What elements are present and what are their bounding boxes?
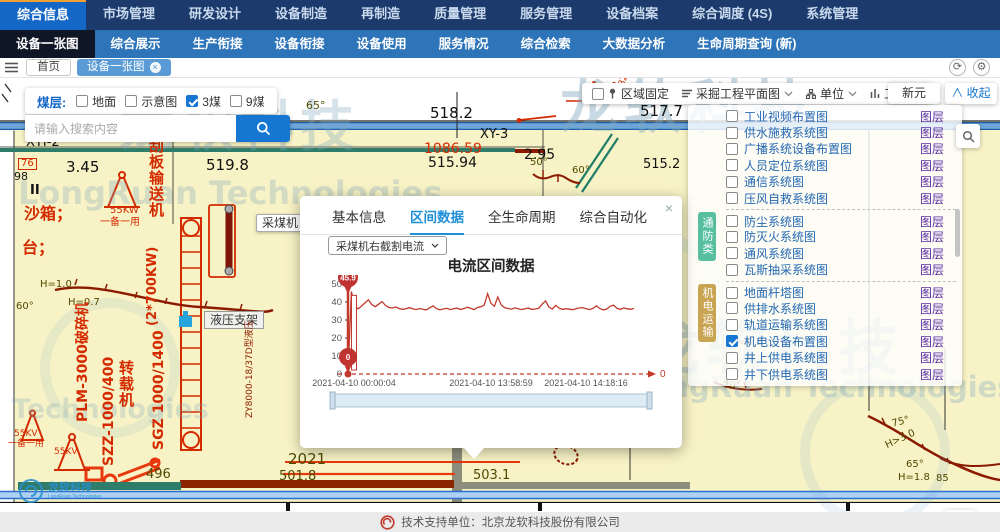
top-nav-item[interactable]: 研发设计 [172,0,258,30]
layer-row[interactable]: 地面杆塔图 图层 [726,281,956,300]
layer-label[interactable]: 井上供电系统图 [744,349,828,366]
top-nav-item[interactable]: 设备制造 [258,0,344,30]
map-label: 沙箱； [24,206,72,222]
layer-label[interactable]: 防灭火系统图 [744,228,816,245]
refresh-icon[interactable]: ⟳ [949,59,966,76]
layer-link[interactable]: 图层 [920,108,944,125]
layer-link[interactable]: 图层 [920,124,944,141]
layer-label[interactable]: 地面杆塔图 [744,284,804,301]
map-label: (2*700KW) [146,247,159,326]
popup-tabs: 基本信息区间数据全生命周期综合自动化 [300,196,682,235]
checkbox-icon[interactable] [726,352,738,364]
checkbox-icon[interactable] [726,287,738,299]
checkbox-icon[interactable] [592,88,604,100]
popup-tab[interactable]: 全生命周期 [488,206,556,234]
svg-text:2021-04-10 13:58:59: 2021-04-10 13:58:59 [449,378,533,388]
map-label: 液压支架 [204,311,264,329]
svg-text:2021-04-10 14:18:16: 2021-04-10 14:18:16 [544,378,628,388]
checkbox-icon[interactable] [726,127,738,139]
map-label: 65° [906,460,924,470]
layer-label[interactable]: 工业视频布置图 [744,108,828,125]
layer-link[interactable]: 图层 [920,300,944,317]
map-label: 1086.59 [424,142,482,156]
layer-row[interactable]: 轨道运输系统图 图层 [726,317,956,333]
layer-link[interactable]: 图层 [920,228,944,245]
app-window: 综合信息市场管理研发设计设备制造再制造质量管理服务管理设备档案综合调度 (4S)… [0,0,1000,532]
layer-row[interactable]: 瓦斯抽采系统图 图层 [726,262,956,278]
map-label: 518.2 [430,106,473,121]
map-label: 一备一用 [100,218,140,228]
map-label: 60° [16,302,34,312]
map-toolbar: 区域固定 采掘工程平面图 单位 工具 [582,83,931,104]
layer-label[interactable]: 防尘系统图 [744,213,804,230]
top-nav-item[interactable]: 质量管理 [417,0,503,30]
checkbox-icon[interactable] [726,368,738,380]
seam-option-label: 示意图 [141,93,177,110]
sub-nav-item[interactable]: 综合展示 [95,30,177,58]
map-label: 刮板输送机 [148,138,163,218]
layer-link[interactable]: 图层 [920,173,944,190]
longruan-map-logo: 龙软科技 LongRuan Technologies [18,478,102,504]
sub-nav-item[interactable]: 生命周期查询 (新) [681,30,812,58]
seam-checkbox[interactable]: 示意图 [125,93,177,110]
breadcrumb: 首页 设备一张图 × ⟳ ⚙ [0,58,1000,78]
layer-link[interactable]: 图层 [920,245,944,262]
map-label: 515.94 [428,156,477,170]
checkbox-icon[interactable] [726,247,738,259]
map-label: 519.8 [206,158,249,173]
layer-label[interactable]: 通信系统图 [744,173,804,190]
menu-toggle-icon[interactable] [5,62,18,73]
search-button[interactable] [236,115,290,142]
seam-option-label: 9煤 [246,93,265,110]
sub-nav-item[interactable]: 设备衔接 [259,30,341,58]
unit-label: 单位 [820,85,844,102]
layer-link[interactable]: 图层 [920,140,944,157]
layer-label[interactable]: 通风系统图 [744,245,804,262]
plan-select[interactable]: 采掘工程平面图 [682,85,793,102]
org-tree-icon [806,89,816,99]
map-label: 转载机 [118,360,133,408]
chart-title: 电流区间数据 [300,255,682,276]
map-label: 3.45 [66,160,99,175]
panel-scrollbar[interactable] [955,209,960,257]
layer-row[interactable]: 机电设备布置图 图层 [726,333,956,349]
device-detail-popup: × 基本信息区间数据全生命周期综合自动化 采煤机右截割电流 电流区间数据 010… [300,196,682,448]
seam-option-label: 3煤 [202,93,221,110]
sub-nav-item[interactable]: 设备使用 [341,30,423,58]
layer-row[interactable]: 通信系统图 图层 [726,174,956,190]
map-label: 98 [14,171,28,182]
checkbox-icon[interactable] [726,335,738,347]
seam-option-label: 地面 [92,93,116,110]
sub-nav-item[interactable]: 综合检索 [505,30,587,58]
layer-row[interactable]: 井下供电系统图 图层 [726,366,956,382]
checkbox-icon[interactable] [726,215,738,227]
top-nav-item[interactable]: 设备档案 [589,0,675,30]
metric-dropdown-value: 采煤机右截割电流 [336,238,424,254]
layer-link[interactable]: 图层 [920,190,944,207]
area-fix-label: 区域固定 [621,85,669,102]
checkbox-icon[interactable] [726,143,738,155]
map-label: 85 [936,474,949,484]
popup-tab[interactable]: 区间数据 [410,206,464,235]
current-interval-chart[interactable]: 0102030405002021-04-10 00:00:042021-04-1… [312,275,668,416]
seam-checkbox[interactable]: 9煤 [230,93,265,110]
layer-row[interactable]: 井上供电系统图 图层 [726,349,956,365]
layer-row[interactable]: 防尘系统图 图层 [726,209,956,228]
map-label: SGZ 1000/1400 [152,330,166,450]
map-label: 65° [306,100,326,111]
checkbox-icon[interactable] [726,319,738,331]
checkbox-icon[interactable] [726,110,738,122]
svg-text:2021-04-10 00:00:04: 2021-04-10 00:00:04 [312,378,396,388]
tools-icon [870,89,880,98]
layer-label[interactable]: 井下供电系统图 [744,366,828,383]
layer-label[interactable]: 供水施救系统图 [744,124,828,141]
map-label: 55KV [14,430,38,439]
footer: 技术支持单位：北京龙软科技股份有限公司 [0,512,1000,532]
sub-nav-item[interactable]: 大数据分析 [587,30,682,58]
svg-text:20: 20 [331,333,342,344]
mine-select-button[interactable]: 新元 [888,83,940,104]
map-label: 517.7 [640,104,683,119]
chevron-up-icon: ∧ [951,86,963,100]
layer-label[interactable]: 机电设备布置图 [744,333,828,350]
plan-label: 采掘工程平面图 [696,85,780,102]
search-icon [962,130,975,143]
map-search [25,115,290,142]
sub-nav-item[interactable]: 设备一张图 [0,30,95,58]
layer-label[interactable]: 轨道运输系统图 [744,316,828,333]
top-nav-item[interactable]: 综合调度 (4S) [675,0,789,30]
layer-panel: 工业视频布置图 图层 供水施救系统图 图层 广播系统设备布置图 图层 人员定位系… [688,105,962,386]
map-label: 60° [572,166,590,176]
checkbox-icon[interactable] [726,176,738,188]
seam-checkbox[interactable]: 3煤 [186,93,221,110]
brand-en: LongRuan Technologies [48,494,102,500]
layer-link[interactable]: 图层 [920,316,944,333]
top-nav-item[interactable]: 服务管理 [503,0,589,30]
top-nav-item[interactable]: 市场管理 [86,0,172,30]
layer-row[interactable]: 广播系统设备布置图 图层 [726,141,956,157]
footer-text: 技术支持单位：北京龙软科技股份有限公司 [401,514,620,530]
checkbox-icon[interactable] [726,264,738,276]
collapse-panel-button[interactable]: ∧ 收起 [945,83,997,104]
top-nav-item[interactable]: 系统管理 [789,0,875,30]
layer-row[interactable]: 通风系统图 图层 [726,245,956,261]
checkbox-icon[interactable] [726,159,738,171]
map-label: 55KV [54,448,78,457]
checkbox-icon[interactable] [186,95,198,107]
layer-row[interactable]: 供排水系统图 图层 [726,300,956,316]
tab-current[interactable]: 设备一张图 × [77,59,171,76]
layer-row[interactable]: 供水施救系统图 图层 [726,124,956,140]
top-nav-item[interactable]: 综合信息 [0,0,86,30]
svg-text:45.9: 45.9 [340,275,356,282]
close-tab-icon[interactable]: × [150,62,161,73]
sub-nav: 设备一张图综合展示生产衔接设备衔接设备使用服务情况综合检索大数据分析生命周期查询… [0,30,1000,58]
chevron-down-icon [431,243,439,248]
layer-link[interactable]: 图层 [920,284,944,301]
settings-gear-icon[interactable]: ⚙ [973,59,990,76]
svg-text:40: 40 [331,297,342,308]
map-label: 采煤机 [256,214,304,232]
checkbox-icon[interactable] [125,95,137,107]
layer-link[interactable]: 图层 [920,261,944,278]
map-label: 496 [146,468,171,481]
layer-link[interactable]: 图层 [920,213,944,230]
map-label: XY-3 [480,128,508,141]
map-label: SZZ-1000/400 [102,357,116,466]
metric-dropdown[interactable]: 采煤机右截割电流 [328,236,447,255]
svg-text:0: 0 [346,353,351,362]
longruan-logo-icon [380,515,395,530]
map-label: 501.8 [279,470,316,483]
panel-search-button[interactable] [956,124,980,148]
longruan-swirl-icon [18,478,44,504]
chevron-down-icon [784,91,793,97]
brand-cn: 龙软科技 [48,482,102,494]
checkbox-icon[interactable] [726,192,738,204]
map-label: 76 [18,158,37,170]
layer-link[interactable]: 图层 [920,333,944,350]
map-label: 55KW [110,206,139,216]
pin-icon [608,88,617,99]
map-label: 515.2 [643,158,680,171]
layer-label[interactable]: 瓦斯抽采系统图 [744,261,828,278]
top-nav-item[interactable]: 再制造 [344,0,417,30]
checkbox-icon[interactable] [230,95,242,107]
checkbox-icon[interactable] [76,95,88,107]
seam-toolbar: 煤层: 地面 示意图 3煤 9煤 [25,88,277,114]
layer-label[interactable]: 广播系统设备布置图 [744,140,852,157]
layer-link[interactable]: 图层 [920,366,944,383]
map-label: 50° [530,158,548,168]
area-fix-toggle[interactable]: 区域固定 [592,85,669,102]
checkbox-icon[interactable] [726,302,738,314]
map-label: 2021 [288,452,326,467]
map-label: 台； [22,240,54,256]
map-label: PLM-3000破碎机 [76,302,90,422]
layer-group-tag: 机电运输 [698,284,716,342]
layer-row[interactable]: 防灭火系统图 图层 [726,229,956,245]
layer-link[interactable]: 图层 [920,157,944,174]
svg-text:0: 0 [660,369,666,380]
sub-nav-item[interactable]: 服务情况 [423,30,505,58]
chevron-down-icon [848,91,857,97]
layer-row[interactable]: 人员定位系统图 图层 [726,157,956,173]
search-icon [256,121,271,136]
popup-tab[interactable]: 基本信息 [332,206,386,234]
top-nav: 综合信息市场管理研发设计设备制造再制造质量管理服务管理设备档案综合调度 (4S)… [0,0,1000,30]
tab-current-label: 设备一张图 [87,60,145,75]
sub-nav-item[interactable]: 生产衔接 [177,30,259,58]
layer-row[interactable]: 工业视频布置图 图层 [726,108,956,124]
map-label: H=1.0 [40,280,72,290]
layer-row[interactable]: 压风自救系统图 图层 [726,190,956,206]
close-icon[interactable]: × [665,200,673,216]
checkbox-icon[interactable] [726,231,738,243]
layer-label[interactable]: 供排水系统图 [744,300,816,317]
seam-label: 煤层: [37,92,66,111]
tab-home[interactable]: 首页 [26,59,71,76]
map-label: ZY8000-18/37D型液压 [246,320,255,418]
collapse-label: 收起 [967,86,991,100]
map-label: II [30,184,40,197]
layer-label[interactable]: 压风自救系统图 [744,190,828,207]
unit-select[interactable]: 单位 [806,85,857,102]
layer-link[interactable]: 图层 [920,349,944,366]
map-label: 503.1 [473,469,510,482]
map-label: 一备一用 [8,440,44,449]
layers-icon [682,89,692,98]
layer-group-tag: 通防类 [698,212,716,261]
map-label: H=1.8 [898,473,930,483]
seam-checkbox[interactable]: 地面 [76,93,116,110]
layer-label[interactable]: 人员定位系统图 [744,157,828,174]
svg-text:30: 30 [331,315,342,326]
popup-tab[interactable]: 综合自动化 [580,206,648,234]
search-input[interactable] [25,115,236,142]
